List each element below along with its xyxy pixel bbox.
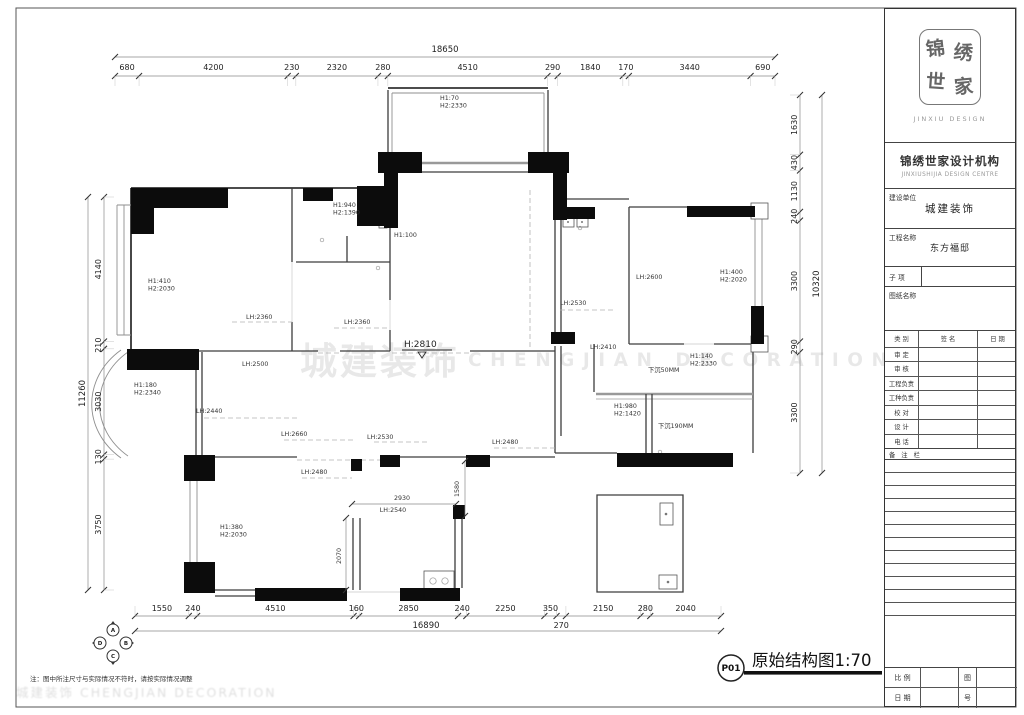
remark-field: 备 注 栏 (885, 449, 1015, 460)
inner-dim: 1580 (454, 481, 461, 497)
project-field: 工程名称 东方福邸 (885, 229, 1015, 267)
sign-row-blank (978, 348, 1017, 362)
dim-text: 4140 (94, 259, 103, 279)
elevation-marker: ABCD (92, 621, 134, 665)
room-label-text: H:2810 (404, 340, 437, 350)
drawing-number: P01 (721, 664, 740, 674)
room-label-text: H1:410H2:2030 (148, 278, 175, 293)
dim-text: 3300 (790, 402, 799, 422)
sign-row-label: 工程负责 (885, 377, 919, 391)
elevation-letter-B: B (124, 641, 128, 647)
elevation-letter-D: D (98, 641, 103, 647)
sign-header-row: 类 别签 名日 期 (885, 331, 1015, 348)
room-label: LH:2660 (281, 431, 307, 438)
room-label: LH:2500 (242, 361, 268, 368)
inner-dim: 2930 (394, 495, 410, 502)
sign-row-blank (919, 362, 978, 376)
dim-chain-right: 163043011302403300290330010320 (790, 92, 825, 476)
room-label: LH:2360 (246, 314, 272, 321)
remark-empty-row (885, 460, 1015, 473)
logo-char: 世 (926, 72, 946, 92)
sign-row-blank (919, 435, 978, 449)
project-label: 工程名称 (889, 232, 916, 242)
remark-empty-row (885, 590, 1015, 603)
company-name-cn: 锦绣世家设计机构 (900, 153, 1000, 169)
dim-total-left: 11260 (78, 380, 88, 407)
sign-row-blank (919, 406, 978, 420)
footer-table: 比 例 图 日 期 号 (885, 668, 1015, 708)
sign-row-blank (919, 348, 978, 362)
inner-dim: LH:2540 (380, 507, 406, 514)
room-label: H1:410H2:2030 (148, 278, 175, 293)
logo-char: 锦 (926, 39, 947, 60)
subitem-divider (921, 267, 922, 286)
remark-empty-row (885, 577, 1015, 590)
dim-text: 1550 (152, 604, 172, 613)
sign-row-blank (919, 377, 978, 391)
room-label: LH:2410 (590, 344, 616, 351)
scale-label: 比 例 (885, 668, 921, 688)
sign-row-blank (978, 377, 1017, 391)
sign-row: 校 对 (885, 406, 1015, 421)
figno-value (977, 668, 1017, 688)
dim-text: 1130 (790, 181, 799, 201)
dim-text: 3030 (94, 392, 103, 412)
dim-text: 690 (755, 63, 770, 72)
room-label: LH:2530 (560, 300, 586, 307)
room-label: 下沉50MM (648, 366, 679, 374)
sign-row: 设 计 (885, 420, 1015, 435)
dim-text: 3300 (790, 271, 799, 291)
svg-text:CHENGJIAN DECORATION: CHENGJIAN DECORATION (468, 350, 896, 371)
room-label: LH:2600 (636, 274, 662, 281)
room-label-text: LH:2440 (196, 408, 222, 415)
room-label-text: 下沉50MM (648, 366, 679, 374)
dim-total-bottom: 16890 (412, 621, 439, 631)
sign-row-blank (978, 420, 1017, 434)
figno-label-top: 图 (959, 668, 977, 688)
remark-label: 备 注 栏 (889, 450, 922, 459)
sign-row-label: 电 话 (885, 435, 919, 449)
sign-row-blank (978, 362, 1017, 376)
remark-rows (885, 460, 1015, 616)
room-label-text: H1:400H2:2020 (720, 269, 747, 284)
dim-total-top: 18650 (431, 45, 458, 55)
room-label-text: LH:2480 (301, 469, 327, 476)
remark-empty-row (885, 499, 1015, 512)
sign-row-blank (919, 420, 978, 434)
room-label-text: LH:2500 (242, 361, 268, 368)
room-label: LH:2360 (344, 319, 370, 326)
dim-text: 170 (618, 63, 633, 72)
room-label: LH:2480 (301, 469, 327, 476)
sign-row: 审 定 (885, 348, 1015, 363)
sign-row-blank (919, 391, 978, 405)
room-label: H1:100 (394, 232, 417, 239)
dim-text: 4200 (203, 63, 223, 72)
dim-text: 160 (349, 604, 364, 613)
room-label-text: LH:2360 (246, 314, 272, 321)
title-block: 锦绣世家 JINXIU DESIGN 锦绣世家设计机构 JINXIUSHIJIA… (884, 8, 1016, 707)
subitem-field: 子 项 (885, 267, 1015, 287)
dim-text: 350 (543, 604, 558, 613)
sign-header-cell: 签 名 (919, 331, 978, 347)
dim-text: 210 (94, 338, 103, 353)
sign-row-blank (978, 435, 1017, 449)
elevation-letter-A: A (111, 628, 116, 634)
sheetname-label: 图纸名称 (889, 290, 916, 300)
dim-text: 3440 (680, 63, 700, 72)
dim-text: 2850 (398, 604, 418, 613)
dim-text: 240 (455, 604, 470, 613)
room-label-text: H1:980H2:1420 (614, 403, 641, 418)
logo-stamp: 锦绣世家 (919, 29, 981, 105)
company-name-en: JINXIUSHIJIA DESIGN CENTRE (901, 172, 998, 178)
sign-row-label: 工种负责 (885, 391, 919, 405)
dim-text: 1840 (580, 63, 600, 72)
sheetname-field: 图纸名称 (885, 287, 1015, 331)
room-label: H1:180H2:2340 (134, 382, 161, 397)
room-label-text: H1:140H2:2330 (690, 353, 717, 368)
sign-row-label: 审 定 (885, 348, 919, 362)
dim-text: 2150 (593, 604, 613, 613)
remark-box (885, 616, 1015, 668)
company-logo: 锦绣世家 JINXIU DESIGN (885, 9, 1015, 143)
client-field: 建设单位 城建装饰 (885, 189, 1015, 229)
title-underline (744, 671, 882, 675)
inner-dim: 2070 (336, 548, 343, 564)
dim-chain-left: 41402103030130375011260 (78, 194, 114, 593)
sign-header-cell: 类 别 (885, 331, 919, 347)
sign-row-label: 设 计 (885, 420, 919, 434)
logo-subtitle: JINXIU DESIGN (914, 115, 987, 123)
dim-text: 130 (94, 449, 103, 464)
svg-text:城建装饰 CHENGJIAN DECORATION: 城建装饰 CHENGJIAN DECORATION (16, 685, 277, 700)
sign-row: 工种负责 (885, 391, 1015, 406)
dim-text: 290 (790, 339, 799, 354)
room-label: H1:70H2:2330 (440, 95, 467, 110)
subitem-label: 子 项 (889, 272, 905, 282)
remark-empty-row (885, 525, 1015, 538)
dim-text: 240 (790, 209, 799, 224)
room-label: H1:380H2:2030 (220, 524, 247, 539)
remark-empty-row (885, 564, 1015, 577)
figno-value2 (977, 688, 1017, 708)
dim-text: 3750 (94, 514, 103, 534)
dim-chain-bottom: 1550240451016028502402250350270215028020… (132, 604, 724, 634)
room-label: H1:940H2:1390 (333, 202, 360, 217)
floor-plan-drawing: 城建装饰 CHENGJIAN DECORATION 城建装饰 CHENGJIAN… (0, 0, 1024, 715)
room-label-text: H1:180H2:2340 (134, 382, 161, 397)
room-label-text: LH:2600 (636, 274, 662, 281)
dim-text: 4510 (457, 63, 477, 72)
room-label-text: H1:70H2:2330 (440, 95, 467, 110)
dim-text: 1630 (790, 115, 799, 135)
dim-text: 280 (375, 63, 390, 72)
room-label-text: H1:940H2:1390 (333, 202, 360, 217)
revision-note: 注：图中所注尺寸与实际情况不符时，请按实际情况调整 (30, 674, 193, 683)
logo-char: 绣 (953, 43, 974, 64)
sign-row: 审 核 (885, 362, 1015, 377)
signature-table: 类 别签 名日 期审 定审 核工程负责工种负责校 对设 计电 话 (885, 331, 1015, 449)
room-label: LH:2440 (196, 408, 222, 415)
room-label-text: LH:2530 (560, 300, 586, 307)
dim-text: 2040 (675, 604, 695, 613)
dim-text: 430 (790, 155, 799, 170)
remark-empty-row (885, 551, 1015, 564)
dim-text: 2320 (327, 63, 347, 72)
room-label: H1:140H2:2330 (690, 353, 717, 368)
scale-value (921, 668, 959, 688)
drawing-title: 原始结构图1:70 (752, 651, 872, 670)
project-value: 东方福邸 (885, 241, 1015, 254)
room-label-text: LH:2660 (281, 431, 307, 438)
drawing-sheet: { "sheet": { "note": "注：图中所注尺寸与实际情况不符时，请… (0, 0, 1024, 715)
dim-chain-top: 6804200230232028045102901840170344069018… (112, 45, 778, 86)
dim-text: 270 (554, 621, 569, 630)
sign-row-blank (978, 406, 1017, 420)
figno-label-bottom: 号 (959, 688, 977, 708)
client-label: 建设单位 (889, 192, 916, 202)
room-label-text: 下沉190MM (658, 422, 693, 430)
room-label-text: LH:2360 (344, 319, 370, 326)
drawing-title-group: P01 原始结构图1:70 (718, 651, 882, 681)
dim-text: 680 (119, 63, 134, 72)
room-label-text: LH:2530 (367, 434, 393, 441)
remark-empty-row (885, 603, 1015, 616)
remark-empty-row (885, 512, 1015, 525)
logo-char: 家 (954, 77, 975, 98)
remark-empty-row (885, 538, 1015, 551)
room-label: LH:2530 (367, 434, 393, 441)
elevation-letter-C: C (111, 654, 115, 660)
sign-row: 电 话 (885, 435, 1015, 449)
dim-text: 290 (545, 63, 560, 72)
remark-empty-row (885, 486, 1015, 499)
date-value (921, 688, 959, 708)
room-label: LH:2480 (492, 439, 518, 446)
dim-text: 230 (284, 63, 299, 72)
sign-row-label: 审 核 (885, 362, 919, 376)
dim-text: 4510 (265, 604, 285, 613)
room-annotations: H1:70H2:2330H1:940H2:1390H1:100H1:410H2:… (134, 95, 747, 564)
room-label: H1:400H2:2020 (720, 269, 747, 284)
room-label-text: LH:2480 (492, 439, 518, 446)
sign-header-cell: 日 期 (978, 331, 1017, 347)
dim-total-right: 10320 (812, 270, 822, 297)
remark-empty-row (885, 473, 1015, 486)
sign-row: 工程负责 (885, 377, 1015, 392)
room-label: H1:980H2:1420 (614, 403, 641, 418)
room-label-text: H1:100 (394, 232, 417, 239)
date-label: 日 期 (885, 688, 921, 708)
dim-text: 280 (638, 604, 653, 613)
client-value: 城建装饰 (885, 201, 1015, 216)
company-name-block: 锦绣世家设计机构 JINXIUSHIJIA DESIGN CENTRE (885, 143, 1015, 189)
dim-text: 240 (185, 604, 200, 613)
sign-row-label: 校 对 (885, 406, 919, 420)
sign-row-blank (978, 391, 1017, 405)
room-label-text: H1:380H2:2030 (220, 524, 247, 539)
dim-text: 2250 (495, 604, 515, 613)
room-label: 下沉190MM (658, 422, 693, 430)
room-label-text: LH:2410 (590, 344, 616, 351)
